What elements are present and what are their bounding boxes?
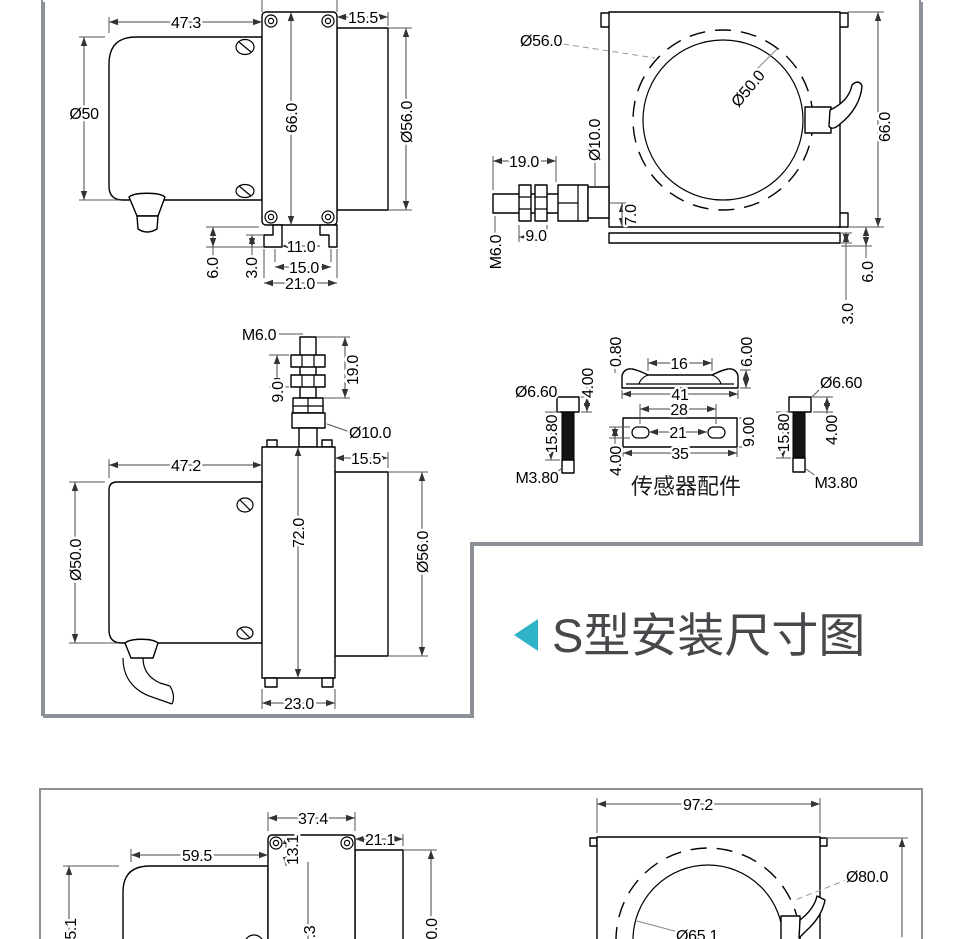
dim-plate-offset-b: 13.1 <box>285 835 302 865</box>
base-rail <box>609 233 840 243</box>
cable-curve <box>123 658 173 704</box>
bottom-front-view: 97.2 Ø80.0 Ø65.1 8 <box>590 797 912 939</box>
wire-rope-assembly-vertical <box>291 337 325 447</box>
dim-body-dia: Ø50 <box>69 106 99 123</box>
dim-drum-dia: Ø56.0 <box>399 101 416 143</box>
dim-thread-spec2: M6.0 <box>242 327 277 344</box>
dim-cut-right: 0.0 <box>424 918 441 939</box>
accessories-drawing: Ø6.60 4.00 15.80 M3.80 0.80 16 6.00 41 2… <box>515 337 862 499</box>
dim-bar-slot-width: 4.00 <box>608 446 625 476</box>
dim-rail-thickness: 3.0 <box>840 303 857 325</box>
cable-gland2 <box>125 639 158 658</box>
bottom-side-view: 37.4 21.1 59.5 13.1 5.1 .3 0.0 <box>63 811 441 939</box>
dim-drum-depth2: 15.5 <box>351 451 381 468</box>
view-side-vertical: M6.0 19.0 9.0 Ø10.0 47.2 15.5 72.0 Ø50.0… <box>68 327 432 713</box>
dim-screwL-shaft: 15.80 <box>544 414 561 453</box>
dim-bar-width: 9.00 <box>741 417 758 447</box>
cable-gland-flare <box>129 193 165 216</box>
view-front: Ø56.0 Ø50.0 Ø10.0 19.0 9.0 M6.0 7.0 66.0… <box>488 12 894 325</box>
technical-drawing-page: 47.3 15.5 Ø50 66.0 Ø56.0 11.0 15.0 21.0 … <box>0 0 960 939</box>
view-side-horizontal: 47.3 15.5 Ø50 66.0 Ø56.0 11.0 15.0 21.0 … <box>69 0 416 293</box>
dim-body-height: 66.0 <box>877 112 894 142</box>
wire-rope-assembly <box>493 185 609 221</box>
dim-plate-height: 66.0 <box>284 103 301 133</box>
wire-guide-block-b <box>781 916 800 939</box>
dim-screwR-shaft: 15.80 <box>776 413 793 452</box>
dim-clip-gap: 16 <box>670 356 688 373</box>
dim-hook-height: 3.0 <box>244 257 261 279</box>
dim-screwL-thread: M3.80 <box>516 470 559 487</box>
cable-gland-barrel <box>137 216 158 232</box>
dim-plate-height2: 72.0 <box>291 518 308 548</box>
drum-cover-side-b <box>355 850 403 939</box>
drawing-canvas: 47.3 15.5 Ø50 66.0 Ø56.0 11.0 15.0 21.0 … <box>0 0 960 939</box>
dim-foot-drop: 6.0 <box>205 257 222 279</box>
dim-screwR-head-dia: Ø6.60 <box>820 375 862 392</box>
dim-clip-height: 6.00 <box>739 337 756 367</box>
dim-drum-depth-b: 21.1 <box>365 832 395 849</box>
page-title: S型安装尺寸图 <box>552 609 865 662</box>
dim-plate-width-b: 37.4 <box>298 811 328 828</box>
dim-drum-outer-b: Ø80.0 <box>846 869 888 886</box>
dim-cut-center: .3 <box>302 925 319 938</box>
dim-body-width: 47.3 <box>171 15 201 32</box>
dim-feet-inner: 11.0 <box>287 239 316 256</box>
dim-screwR-head-h: 4.00 <box>824 415 841 445</box>
dim-bar-slot-span: 21 <box>669 425 687 442</box>
dim-thread-spec: M6.0 <box>488 234 505 269</box>
dim-feet-outer: 21.0 <box>285 276 315 293</box>
dim-fitting-dia: Ø10.0 <box>587 119 604 161</box>
title-arrow-icon <box>514 619 538 651</box>
dim-fitting-dia2: Ø10.0 <box>349 425 391 442</box>
dim-bar-length: 35 <box>671 446 689 463</box>
dim-bar-hole-span: 28 <box>670 402 688 419</box>
dim-body-dia2: Ø50.0 <box>68 539 85 581</box>
dim-body-width-b2: 97.2 <box>683 797 713 814</box>
foot-tab <box>322 678 333 687</box>
sensor-body-side <box>109 37 262 200</box>
dim-body-width2: 47.2 <box>171 458 201 475</box>
drum-cover-side <box>337 28 388 210</box>
plate-tab <box>322 440 332 447</box>
plate-tab <box>267 440 277 447</box>
sensor-body-side2 <box>109 482 262 643</box>
dim-screwL-head-h: 4.00 <box>580 368 597 398</box>
dim-drum-depth: 15.5 <box>348 10 378 27</box>
foot-tab <box>265 678 277 687</box>
dim-nut-length2: 9.0 <box>270 381 287 403</box>
dim-body-width-b: 59.5 <box>182 848 212 865</box>
dim-stud-length: 19.0 <box>509 154 539 171</box>
accessories-caption: 传感器配件 <box>631 474 741 499</box>
dim-screwL-head-dia: Ø6.60 <box>515 384 557 401</box>
dim-drum-outer-dia: Ø56.0 <box>520 33 562 50</box>
plate-tab-b <box>820 838 827 846</box>
mounting-foot-right <box>320 225 337 247</box>
dim-stud-length2: 19.0 <box>345 355 362 385</box>
dim-rail-offset: 6.0 <box>860 261 877 283</box>
drum-cover-side2 <box>335 472 388 656</box>
dim-drum-inner-b: Ø65.1 <box>676 928 718 939</box>
wire-guide-block <box>805 107 831 133</box>
dim-base-width: 23.0 <box>284 696 314 713</box>
mounting-foot-left <box>264 225 282 247</box>
dim-screwR-thread: M3.80 <box>815 475 858 492</box>
section-title: S型安装尺寸图 <box>514 609 865 662</box>
dim-drum-dia2: Ø56.0 <box>415 531 432 573</box>
dim-feet-mid: 15.0 <box>289 260 319 277</box>
plate-tab-b <box>590 838 597 846</box>
sensor-body-side-b <box>123 866 268 939</box>
dim-cut-left: 5.1 <box>63 918 80 939</box>
dim-nut-length: 9.0 <box>525 228 547 245</box>
mounting-plate-b <box>268 835 355 939</box>
dim-clip-thickness: 0.80 <box>608 337 625 367</box>
dim-wire-offset: 7.0 <box>623 204 640 226</box>
